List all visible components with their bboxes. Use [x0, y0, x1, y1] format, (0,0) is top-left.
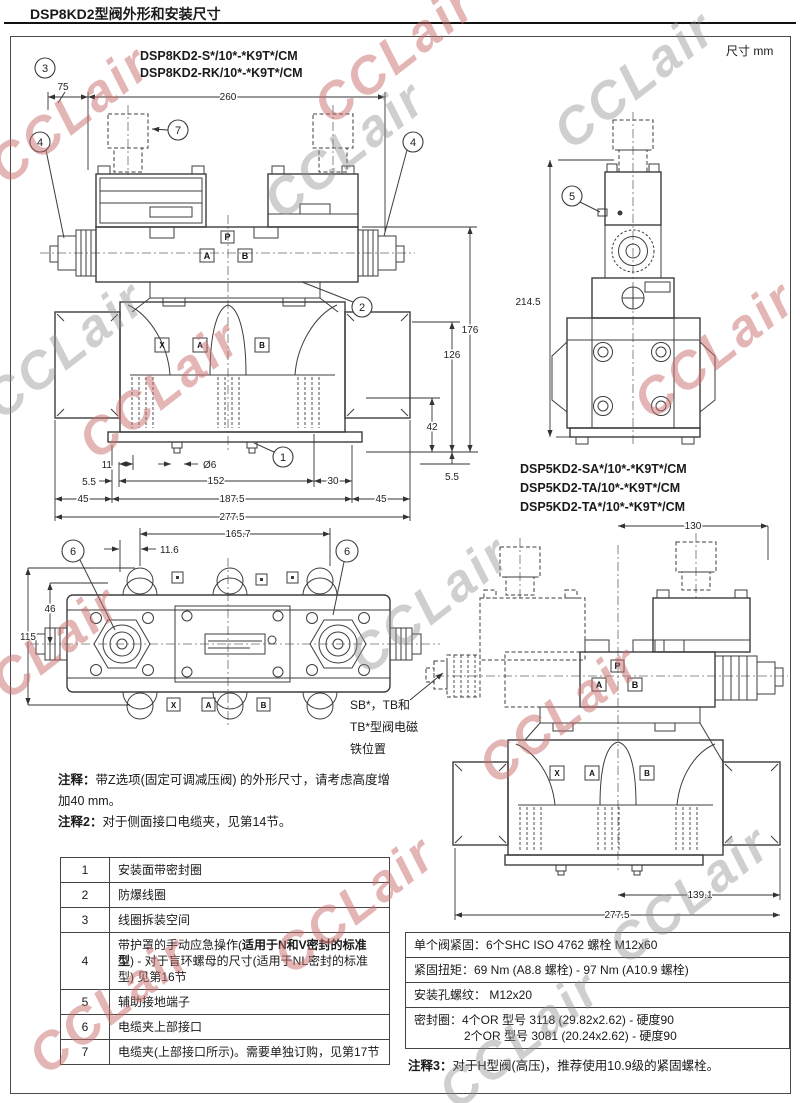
- port-x: X: [554, 769, 560, 778]
- callout-2-label: 2: [359, 302, 365, 314]
- dim-label: 46: [44, 604, 56, 615]
- body-label-b: B: [242, 251, 249, 261]
- front-view-drawing: P A B X A: [30, 58, 479, 523]
- bolt-holes-dashed: [520, 807, 697, 852]
- dim-label: 11: [102, 460, 113, 471]
- dim-label: 45: [77, 494, 89, 505]
- dim-label: 152: [208, 476, 225, 487]
- callout-5-label: 5: [569, 191, 575, 203]
- dim-label: 260: [220, 92, 237, 103]
- top-view-drawing: X A B: [20, 528, 440, 726]
- callout-1-label: 1: [280, 452, 286, 464]
- dim-label: 42: [426, 422, 438, 433]
- dim-label: 30: [327, 476, 339, 487]
- body-label-a: A: [596, 680, 603, 690]
- callout-6-label: 6: [344, 546, 350, 558]
- dim-label: 139.1: [687, 890, 712, 901]
- body-label-p: P: [224, 232, 230, 242]
- dim-label: 11.6: [160, 545, 179, 556]
- dim-label: 277.5: [219, 512, 244, 523]
- port-x: X: [171, 701, 177, 710]
- datasheet-page: DSP8KD2型阀外形和安装尺寸 尺寸 mm DSP8KD2-S*/10*-*K…: [0, 0, 800, 1103]
- port-b: B: [261, 701, 267, 710]
- port-x: X: [159, 341, 165, 350]
- callout-6-label: 6: [70, 546, 76, 558]
- callout-4-label: 4: [410, 137, 416, 149]
- dim-label: Ø6: [203, 460, 217, 471]
- dim-label: 5.5: [445, 472, 459, 483]
- callout-3-label: 3: [42, 63, 48, 75]
- port-b: B: [259, 341, 265, 350]
- dim-label: 126: [444, 350, 461, 361]
- technical-drawings: P A B X A: [0, 0, 800, 1103]
- port-a: A: [197, 341, 203, 350]
- dim-label: 45: [375, 494, 387, 505]
- dim-label: 277.5: [604, 910, 629, 921]
- top-ears: [123, 568, 337, 595]
- bottom-ears: [123, 692, 337, 719]
- dsp5-view-drawing: P A B X A B: [410, 521, 788, 921]
- body-label-b: B: [632, 680, 639, 690]
- port-a: A: [206, 701, 212, 710]
- bolt-holes-dashed: [132, 377, 319, 428]
- mounting-screws: [594, 343, 671, 416]
- dim-label: 5.5: [82, 477, 96, 488]
- side-view-drawing: 214.5 5: [515, 112, 715, 447]
- dim-label: 115: [20, 632, 36, 643]
- dim-label: 165.7: [225, 529, 250, 540]
- callout-7-label: 7: [175, 125, 181, 137]
- body-label-p: P: [614, 661, 620, 671]
- dim-label: 176: [462, 325, 479, 336]
- dim-label: 130: [685, 521, 702, 532]
- dim-label: 75: [57, 82, 69, 93]
- port-a: A: [589, 769, 595, 778]
- dim-label: 214.5: [515, 297, 540, 308]
- port-b: B: [644, 769, 650, 778]
- callout-4-label: 4: [37, 137, 43, 149]
- dim-label: 187.5: [219, 494, 244, 505]
- body-label-a: A: [204, 251, 211, 261]
